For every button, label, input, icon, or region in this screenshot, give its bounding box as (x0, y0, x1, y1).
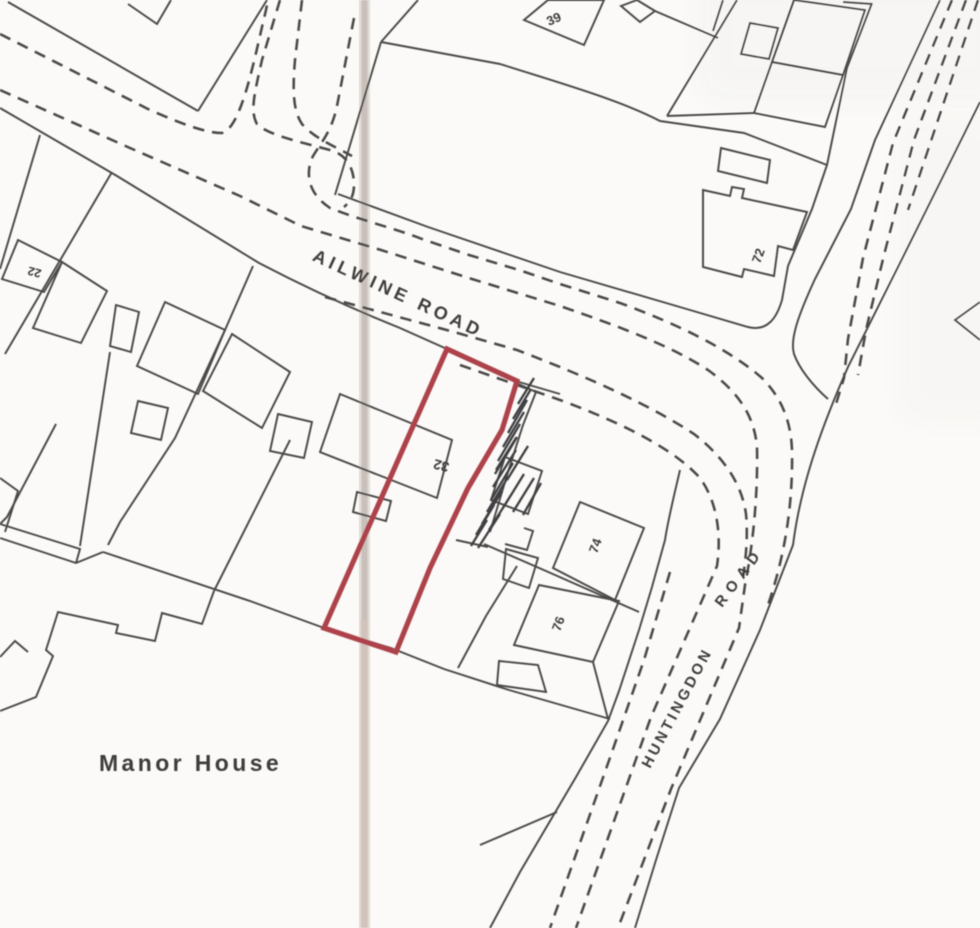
svg-text:Manor House: Manor House (99, 750, 282, 776)
